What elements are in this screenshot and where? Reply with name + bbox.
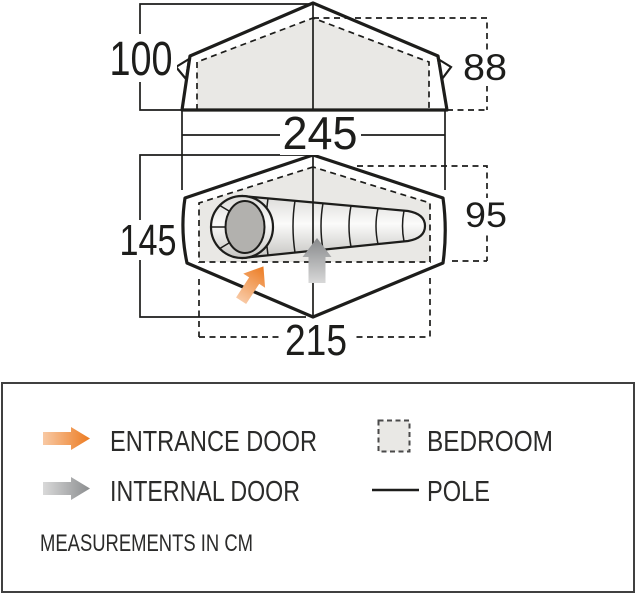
- dim-bedroom-length: 215: [285, 316, 347, 365]
- floor-plan: [140, 155, 487, 337]
- legend-entrance-door-label: ENTRANCE DOOR: [110, 426, 317, 458]
- legend-pole-label: POLE: [427, 476, 490, 508]
- dim-bedroom-width: 95: [465, 196, 507, 235]
- dim-plan-width: 145: [120, 216, 177, 265]
- dim-side-height-left: 100: [110, 33, 173, 86]
- measurements-note: MEASUREMENTS IN CM: [40, 530, 253, 557]
- bedroom-swatch-icon: [379, 421, 410, 452]
- diagram-canvas: 100 88 245 145 95 215 ENTRANCE DOOR INTE…: [0, 0, 641, 600]
- tent-dimensions-diagram: 100 88 245 145 95 215 ENTRANCE DOOR INTE…: [0, 0, 641, 600]
- legend-box: [2, 383, 634, 592]
- legend: ENTRANCE DOOR INTERNAL DOOR BEDROOM POLE…: [2, 383, 634, 592]
- legend-bedroom-label: BEDROOM: [427, 426, 553, 458]
- dim-side-height-right: 88: [463, 47, 507, 88]
- legend-internal-door-label: INTERNAL DOOR: [110, 476, 300, 508]
- sleeping-bag-opening: [226, 201, 265, 253]
- dim-side-length: 245: [283, 107, 358, 159]
